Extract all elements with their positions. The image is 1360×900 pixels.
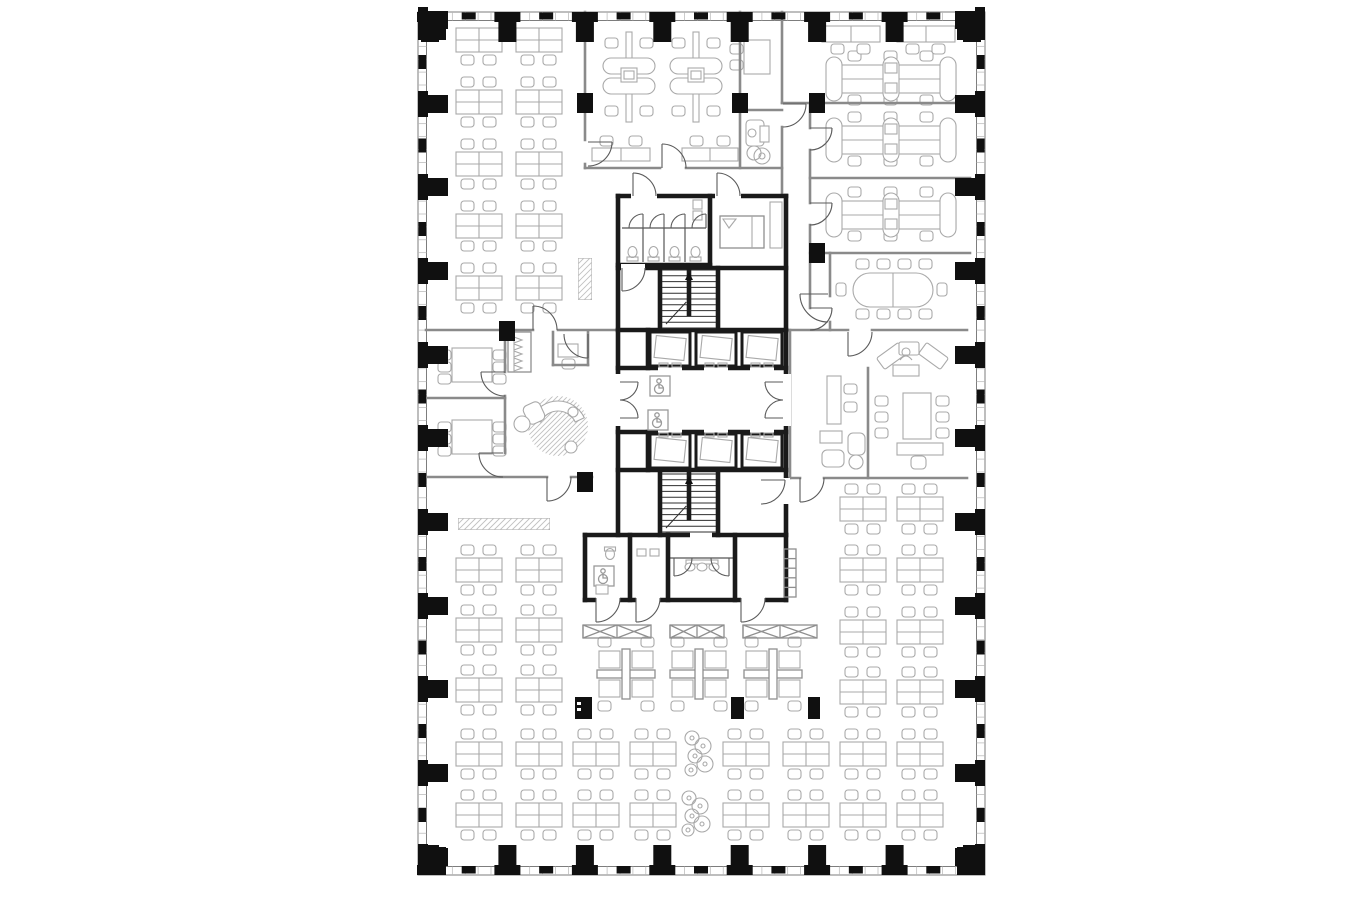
office-floor-plan-drawing [0, 0, 1360, 900]
floor-plan-page [0, 0, 1360, 900]
